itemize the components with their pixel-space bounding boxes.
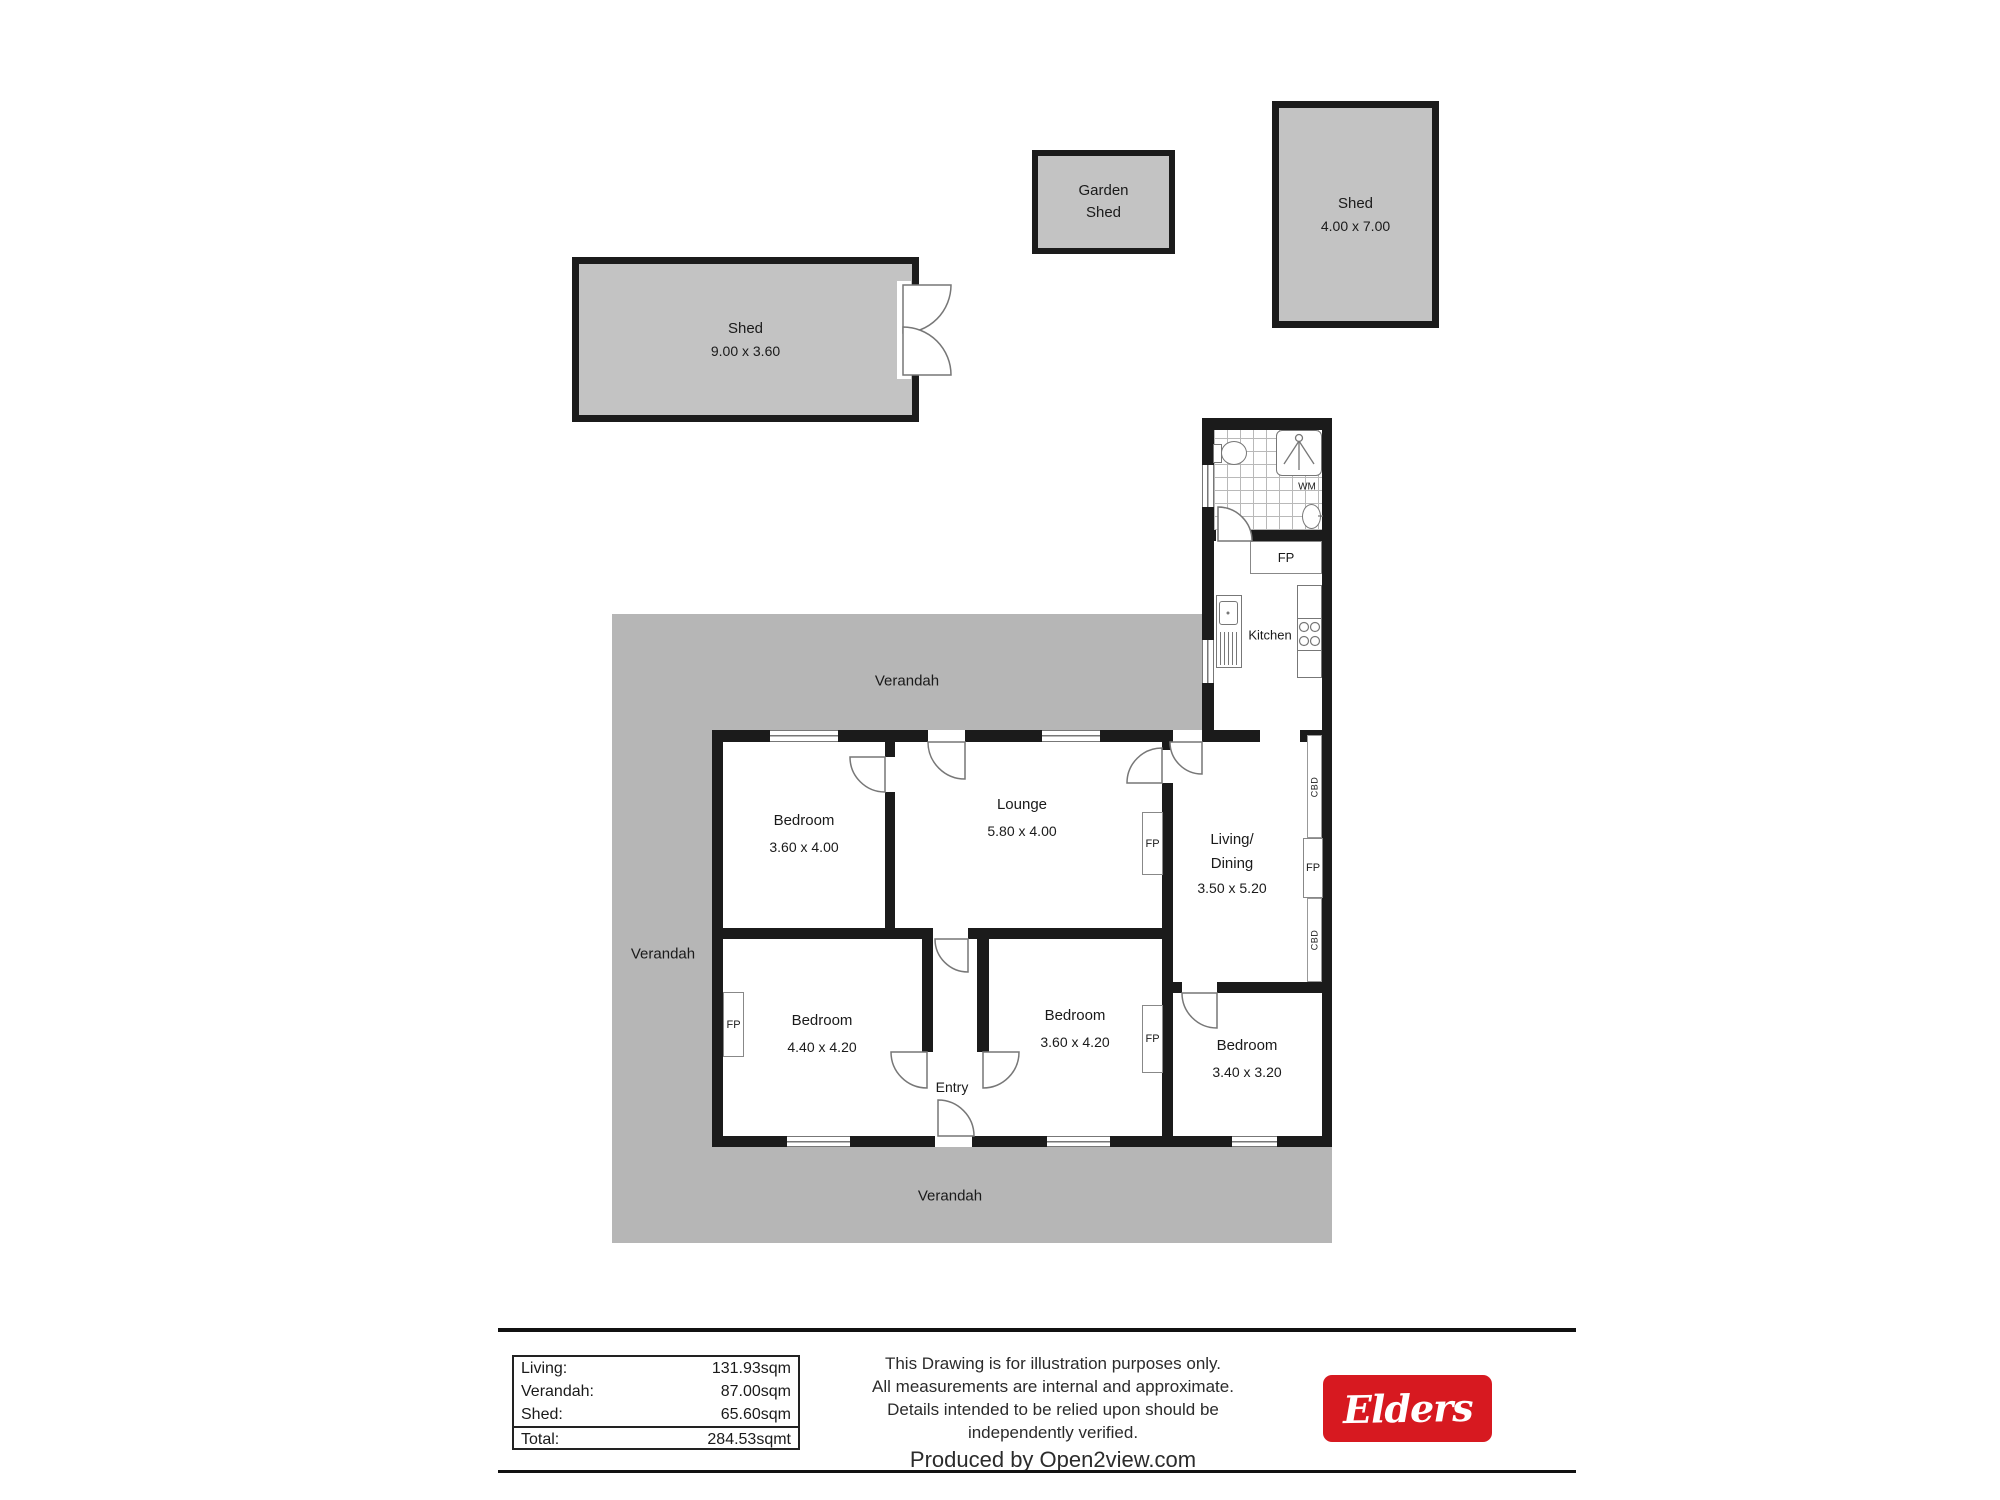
room-name: Bedroom — [787, 1008, 856, 1034]
window — [1202, 640, 1214, 683]
table-row: Living: 131.93sqm — [514, 1357, 798, 1380]
area-value: 131.93sqm — [712, 1358, 791, 1379]
elders-logo: Elders — [1323, 1375, 1492, 1442]
window — [770, 730, 838, 742]
fireplace-label: FP — [1306, 862, 1320, 874]
room-label-bedroom-mid: Bedroom 3.60 x 4.20 — [1040, 1003, 1109, 1055]
room-name: Bedroom — [769, 808, 838, 834]
room-label-living-dining: Living/ Dining 3.50 x 5.20 — [1197, 828, 1266, 900]
window — [1232, 1136, 1277, 1147]
wall — [1110, 1136, 1232, 1147]
cupboard-upper: CBD — [1307, 735, 1322, 838]
wall — [1202, 507, 1214, 640]
wall — [968, 928, 1162, 939]
verandah-top-label: Verandah — [875, 673, 939, 690]
produced-by-credit: Produced by Open2view.com — [813, 1448, 1293, 1471]
fireplace-bedroom-mid: FP — [1142, 1005, 1163, 1073]
cupboard-label: CBD — [1310, 930, 1320, 951]
wall — [1100, 730, 1168, 742]
wall — [1162, 783, 1173, 1136]
area-value: 87.00sqm — [721, 1381, 791, 1402]
window — [1042, 730, 1100, 742]
room-label-kitchen: Kitchen — [1248, 628, 1291, 643]
window — [1047, 1136, 1110, 1147]
wall — [1202, 418, 1332, 430]
footer-top-rule — [498, 1328, 1576, 1332]
area-label: Shed: — [521, 1404, 563, 1425]
verandah-bottom-label: Verandah — [918, 1188, 982, 1205]
shed-door-gap — [897, 281, 911, 379]
disclaimer-line: Details intended to be relied upon shoul… — [813, 1398, 1293, 1421]
cupboard-lower: CBD — [1307, 898, 1322, 982]
wall — [885, 742, 895, 757]
kitchen-sink-basin — [1219, 601, 1238, 625]
disclaimer-text: This Drawing is for illustration purpose… — [813, 1352, 1293, 1471]
room-dims: 4.40 x 4.20 — [787, 1034, 856, 1060]
area-label: Total: — [521, 1429, 559, 1450]
laundry-tub — [1302, 504, 1321, 529]
wall — [977, 928, 989, 1052]
room-dims: 3.60 x 4.00 — [769, 834, 838, 860]
room-name: Bedroom — [1040, 1003, 1109, 1029]
wall — [838, 730, 928, 742]
area-label: Living: — [521, 1358, 567, 1379]
room-name: Living/ — [1197, 828, 1266, 852]
wall — [1250, 530, 1322, 541]
fireplace-label: FP — [1145, 1033, 1159, 1045]
disclaimer-line: independently verified. — [813, 1421, 1293, 1444]
wall — [712, 1136, 787, 1147]
garden-shed-label-line1: Garden — [1078, 180, 1128, 202]
wall — [1202, 730, 1260, 742]
wall — [1277, 1136, 1332, 1147]
room-label-bedroom-right: Bedroom 3.40 x 3.20 — [1212, 1033, 1281, 1085]
cooktop-divider — [1297, 650, 1322, 651]
room-dims: 3.60 x 4.20 — [1040, 1029, 1109, 1055]
fireplace-bedroom-left: FP — [723, 992, 744, 1057]
room-name: Dining — [1197, 852, 1266, 876]
area-label: Verandah: — [521, 1381, 594, 1402]
sink-drainer-lines — [1220, 632, 1239, 665]
room-label-entry: Entry — [936, 1079, 969, 1095]
garden-shed-label-line2: Shed — [1086, 202, 1121, 224]
wall — [1217, 982, 1332, 993]
wall — [712, 928, 933, 939]
area-value: 65.60sqm — [721, 1404, 791, 1425]
room-dims: 3.50 x 5.20 — [1197, 876, 1266, 900]
fireplace-living: FP — [1303, 838, 1323, 898]
wall — [850, 1136, 935, 1147]
room-label-bedroom-left: Bedroom 4.40 x 4.20 — [787, 1008, 856, 1060]
wall — [965, 730, 1042, 742]
fireplace-label: FP — [726, 1019, 740, 1031]
wall — [885, 792, 895, 930]
cooktop-unit — [1297, 585, 1322, 678]
elders-logo-text: Elders — [1342, 1385, 1472, 1432]
wall — [922, 939, 933, 1052]
disclaimer-line: This Drawing is for illustration purpose… — [813, 1352, 1293, 1375]
wall — [1322, 418, 1332, 1147]
footer-bottom-rule — [498, 1470, 1576, 1473]
shed-wide: Shed 9.00 x 3.60 — [572, 257, 919, 422]
table-row: Verandah: 87.00sqm — [514, 1380, 798, 1403]
wall — [1162, 730, 1173, 750]
room-name: Lounge — [987, 792, 1056, 818]
area-value: 284.53sqmt — [707, 1429, 791, 1450]
verandah-left-label: Verandah — [631, 946, 695, 963]
wall — [1202, 530, 1216, 541]
fireplace-label: FP — [1278, 550, 1295, 565]
cupboard-label: CBD — [1310, 776, 1320, 797]
shed-tall: Shed 4.00 x 7.00 — [1272, 101, 1439, 328]
window — [1202, 465, 1214, 507]
room-label-lounge: Lounge 5.80 x 4.00 — [987, 792, 1056, 844]
garden-shed: Garden Shed — [1032, 150, 1175, 254]
room-dims: 3.40 x 3.20 — [1212, 1059, 1281, 1085]
floor-plan-page: Garden Shed Shed 4.00 x 7.00 Shed 9.00 x… — [0, 0, 2000, 1500]
fireplace-kitchen: FP — [1250, 541, 1322, 574]
window — [787, 1136, 850, 1147]
shed-tall-dims: 4.00 x 7.00 — [1321, 215, 1390, 237]
table-row: Shed: 65.60sqm — [514, 1403, 798, 1426]
wall — [972, 1136, 1047, 1147]
fireplace-lounge: FP — [1142, 812, 1163, 875]
shed-wide-dims: 9.00 x 3.60 — [711, 340, 780, 362]
room-label-bedroom-top: Bedroom 3.60 x 4.00 — [769, 808, 838, 860]
room-dims: 5.80 x 4.00 — [987, 818, 1056, 844]
shed-wide-name: Shed — [728, 318, 763, 340]
table-row-total: Total: 284.53sqmt — [514, 1428, 798, 1451]
shed-tall-name: Shed — [1338, 193, 1373, 215]
disclaimer-line: All measurements are internal and approx… — [813, 1375, 1293, 1398]
area-summary-table: Living: 131.93sqm Verandah: 87.00sqm She… — [512, 1355, 800, 1450]
fireplace-label: FP — [1145, 838, 1159, 850]
wall — [1162, 982, 1182, 993]
room-name: Bedroom — [1212, 1033, 1281, 1059]
toilet-bowl — [1221, 441, 1247, 465]
shower — [1276, 430, 1322, 476]
washing-machine-label: WM — [1298, 482, 1316, 493]
cooktop-divider — [1297, 618, 1322, 619]
